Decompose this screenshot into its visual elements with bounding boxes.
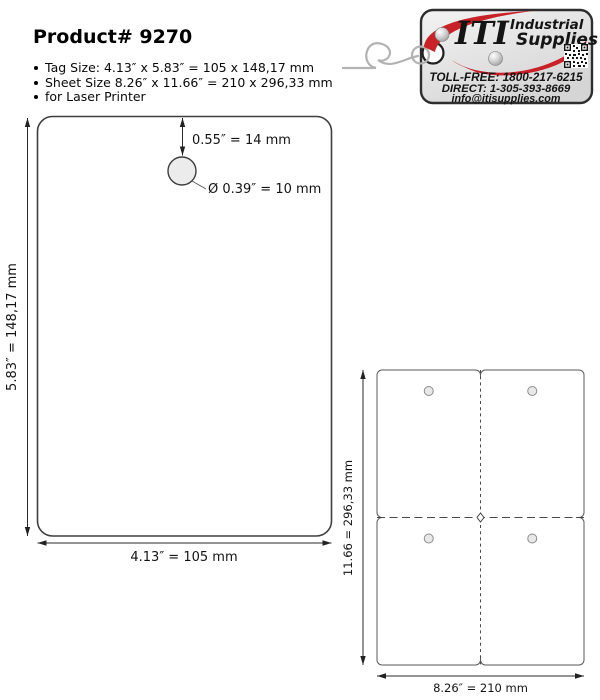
page: Product# 9270 Tag Size: 4.13″ x 5.83″ = …: [0, 0, 600, 700]
spec-list: Tag Size: 4.13″ x 5.83″ = 105 x 148,17 m…: [34, 61, 333, 105]
logo-tollfree-number: TOLL-FREE: 1800-217-6215: [429, 70, 583, 84]
spec-item-tag-size: Tag Size: 4.13″ x 5.83″ = 105 x 148,17 m…: [34, 61, 333, 76]
hole-offset-label: 0.55″ = 14 mm: [192, 133, 291, 148]
hole-diameter-label: Ø 0.39″ = 10 mm: [208, 182, 321, 197]
sheet-tag-hole: [528, 534, 537, 543]
bullet-icon: [34, 81, 38, 85]
bullet-icon: [34, 66, 38, 70]
logo-email: info@itisupplies.com: [452, 93, 561, 105]
spec-item-sheet-size: Sheet Size 8.26″ x 11.66″ = 210 x 296,33…: [34, 76, 333, 91]
tag-width-label: 4.13″ = 105 mm: [130, 550, 237, 565]
metal-ball-icon: [435, 28, 449, 42]
page-title: Product# 9270: [33, 26, 192, 48]
qr-code-icon: [564, 44, 588, 68]
sheet-tag-hole: [424, 387, 433, 396]
sheet-tag-hole: [424, 534, 433, 543]
company-logo: ITI Industrial Supplies TOLL-FREE: 1800-…: [340, 3, 598, 107]
sheet-tag-hole: [528, 387, 537, 396]
tag-hole: [168, 157, 196, 185]
spec-item-printer: for Laser Printer: [34, 90, 333, 105]
spec-text: Tag Size: 4.13″ x 5.83″ = 105 x 148,17 m…: [45, 61, 314, 76]
sheet-height-label: 11.66 = 296,33 mm: [341, 460, 355, 576]
spec-text: Sheet Size 8.26″ x 11.66″ = 210 x 296,33…: [45, 76, 333, 91]
sheet-width-label: 8.26″ = 210 mm: [433, 681, 528, 695]
metal-ball-icon: [489, 52, 503, 66]
tag-dimension-diagram: 5.83″ = 148,17 mm 4.13″ = 105 mm 0.55″ =…: [0, 108, 345, 583]
bullet-icon: [34, 95, 38, 99]
tag-height-label: 5.83″ = 148,17 mm: [5, 263, 20, 391]
wire-icon: [343, 43, 418, 68]
logo-brand-iti: ITI: [454, 14, 510, 52]
sheet-layout-diagram: 11.66 = 296,33 mm 8.26″ = 210 mm: [340, 358, 600, 700]
spec-text: for Laser Printer: [45, 90, 146, 105]
